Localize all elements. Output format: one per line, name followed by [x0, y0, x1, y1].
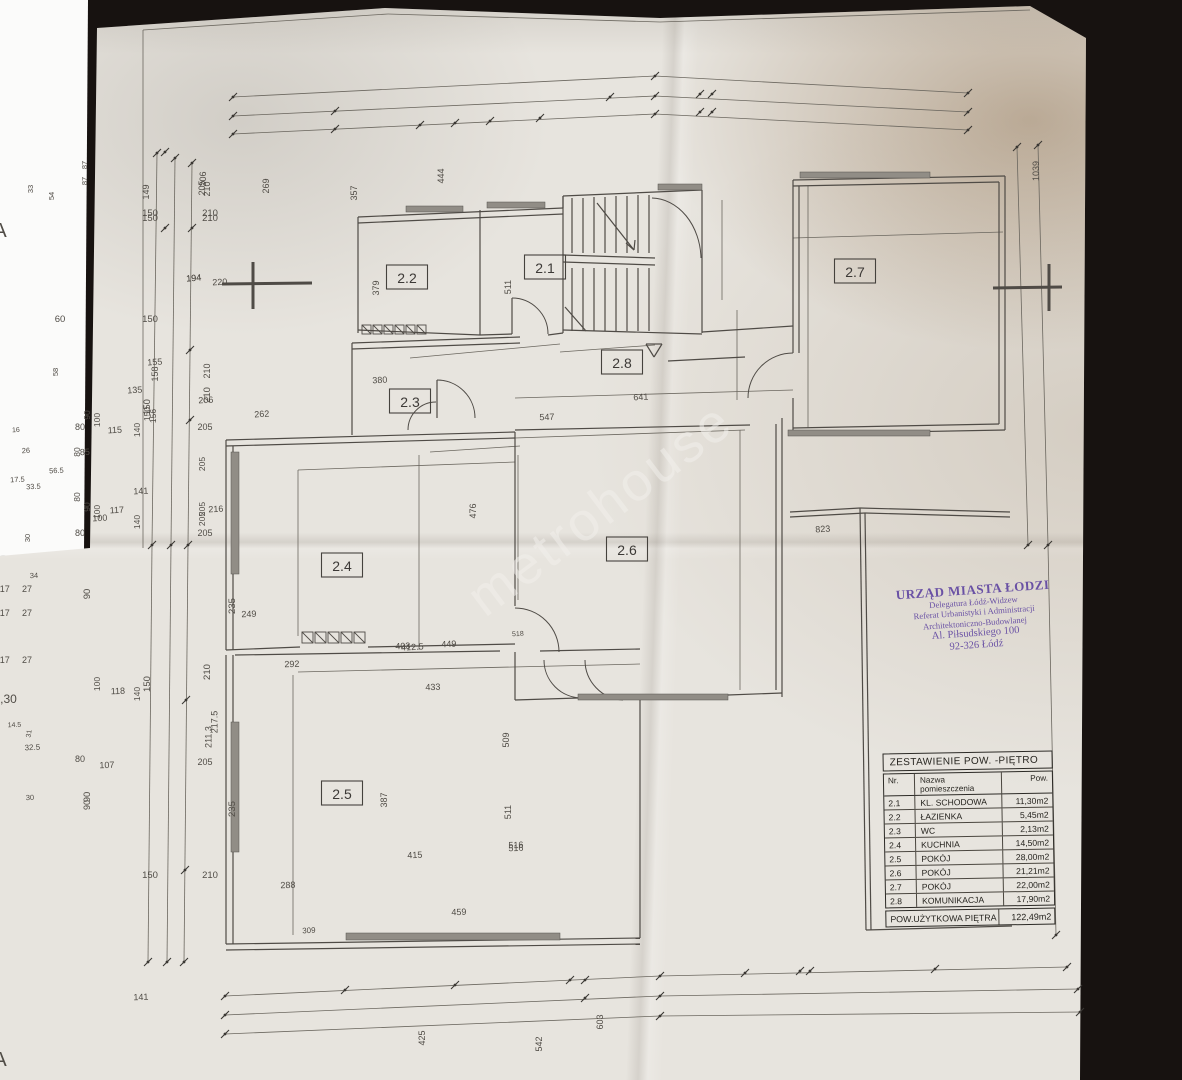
- dimension-label: 542: [534, 1036, 544, 1051]
- dimension-label: 459: [451, 907, 466, 918]
- area-table: ZESTAWIENIE POW. -PIĘTRO Nr. Nazwa pomie…: [882, 751, 1055, 928]
- header-area: Pow.: [1002, 772, 1052, 794]
- dimension-label: 205: [197, 502, 207, 516]
- dimension-line: [388, 14, 660, 22]
- dimension-label: 90: [82, 410, 92, 420]
- room-label: 2.1: [535, 260, 555, 276]
- dimension-label: 27: [22, 584, 32, 594]
- dimension-line: [660, 10, 1030, 22]
- dimension-label: + 4,30: [0, 692, 17, 706]
- room-label: 2.7: [845, 264, 865, 280]
- table-cell: 2.1: [884, 796, 915, 810]
- wall-line: [480, 334, 512, 335]
- window-symbol: [231, 452, 239, 574]
- dimension-label: 1039: [1031, 161, 1041, 181]
- dimension-tick-dot: [799, 970, 802, 973]
- dimension-tick-dot: [569, 979, 572, 982]
- dimension-label: 58: [51, 368, 60, 376]
- dimension-tick-dot: [659, 1015, 662, 1018]
- dimension-label: 135: [127, 384, 143, 395]
- dimension-label: 60: [55, 314, 66, 325]
- dimension-label: 87: [80, 161, 89, 169]
- wall-line: [548, 333, 563, 335]
- table-cell: 2.4: [885, 838, 916, 852]
- dimension-tick-dot: [185, 699, 188, 702]
- dimension-tick-dot: [934, 968, 937, 971]
- window-symbol: [578, 694, 728, 700]
- table-cell: ŁAZIENKA: [915, 808, 1002, 823]
- dimension-tick-dot: [584, 979, 587, 982]
- dimension-tick-dot: [711, 111, 714, 114]
- wall-line: [226, 647, 300, 650]
- dimension-label: 80: [72, 492, 82, 502]
- room-label: 2.5: [332, 786, 352, 802]
- dimension-tick-dot: [187, 544, 190, 547]
- dimension-tick-dot: [809, 970, 812, 973]
- dimension-tick-dot: [711, 93, 714, 96]
- wall-line: [728, 693, 782, 695]
- dimension-label: 54: [47, 192, 56, 200]
- dimension-label: 403: [395, 641, 411, 652]
- wall-line: [646, 344, 654, 357]
- dimension-line: [1017, 147, 1028, 545]
- dimension-label: 309: [302, 926, 316, 936]
- dimension-tick-dot: [151, 544, 154, 547]
- wall-line: [634, 240, 635, 250]
- dimension-label: 31: [25, 729, 33, 738]
- wall-line: [226, 944, 640, 950]
- dimension-tick-dot: [1055, 934, 1058, 937]
- dimension-label: 211.3: [203, 726, 213, 748]
- dimension-tick-dot: [232, 133, 235, 136]
- table-cell: 17,90m2: [1004, 892, 1054, 906]
- dimension-label: 118: [111, 686, 126, 696]
- dimension-label: 516: [508, 843, 523, 854]
- dimension-line: [1038, 145, 1048, 545]
- hatch-diagonal: [341, 632, 352, 643]
- dimension-label: 149: [141, 184, 151, 199]
- dimension-tick-dot: [454, 122, 457, 125]
- dimension-label: 235: [227, 801, 238, 817]
- dimension-label: 194: [186, 272, 202, 283]
- dimension-label: 603: [595, 1014, 605, 1029]
- window-symbol: [658, 184, 702, 190]
- dimension-label: 155: [147, 356, 163, 367]
- dimension-tick-dot: [699, 93, 702, 96]
- dimension-line: [171, 158, 175, 545]
- wall-line: [563, 262, 655, 265]
- wall-line: [793, 182, 999, 186]
- dimension-line: [655, 114, 968, 130]
- wall-line: [515, 698, 578, 700]
- dimension-label: 87: [80, 177, 89, 185]
- dimension-tick-dot: [654, 95, 657, 98]
- wall-line: [668, 357, 745, 361]
- dimension-label: 32.5: [24, 743, 41, 753]
- dimension-line: [188, 163, 192, 545]
- area-table-grid: Nr. Nazwa pomieszczenia Pow. 2.1KL. SCHO…: [883, 771, 1055, 909]
- room-label: 2.6: [617, 542, 637, 558]
- dimension-label: 100: [92, 513, 108, 524]
- dimension-label: 269: [261, 178, 271, 193]
- dimension-label: A: [0, 220, 7, 242]
- dimension-tick-dot: [189, 349, 192, 352]
- table-cell: 2.5: [885, 852, 916, 866]
- dimension-label: 9x17: [0, 655, 10, 665]
- dimension-tick-dot: [699, 111, 702, 114]
- dimension-label: 17.5: [10, 475, 25, 485]
- dimension-tick-dot: [164, 151, 167, 154]
- dimension-label: 158: [150, 366, 160, 381]
- wall-line: [235, 651, 500, 655]
- hatch-diagonal: [328, 632, 339, 643]
- dimension-label: 141: [133, 992, 148, 1003]
- footer-value: 122,49m2: [999, 909, 1054, 925]
- dimension-line: [148, 545, 152, 962]
- table-cell: POKÓJ: [917, 878, 1004, 893]
- dimension-label: 210: [202, 181, 212, 196]
- dimension-label: 357: [349, 185, 359, 200]
- dimension-tick-dot: [659, 995, 662, 998]
- dimension-label: 33.5: [26, 482, 41, 492]
- dimension-line: [793, 232, 1003, 238]
- dimension-label: 80: [75, 422, 85, 432]
- dimension-tick-dot: [967, 92, 970, 95]
- dimension-label: 262: [254, 408, 270, 419]
- wall-line: [563, 190, 702, 196]
- area-table-footer: POW.UŻYTKOWA PIĘTRA 122,49m2: [885, 908, 1055, 928]
- table-cell: 2.2: [884, 810, 915, 824]
- dimension-label: 380: [372, 375, 388, 386]
- dimension-label: 141: [133, 486, 149, 497]
- table-cell: 14,50m2: [1003, 836, 1053, 850]
- table-cell: 11,30m2: [1002, 794, 1052, 808]
- wall-line: [222, 283, 312, 284]
- dimension-label: 27: [22, 608, 32, 618]
- dimension-label: 100: [92, 677, 102, 691]
- dimension-line: [560, 345, 655, 352]
- window-symbol: [346, 933, 560, 940]
- dimension-label: 34: [30, 571, 39, 580]
- dimension-line: [655, 76, 968, 93]
- table-cell: 2.7: [886, 880, 917, 894]
- dimension-tick-dot: [344, 989, 347, 992]
- dimension-label: 823: [815, 523, 831, 534]
- footer-label: POW.UŻYTKOWA PIĘTRA: [886, 909, 999, 926]
- dimension-tick-dot: [744, 972, 747, 975]
- window-symbol: [788, 430, 930, 436]
- dimension-label: 140: [132, 423, 142, 437]
- dimension-tick-dot: [1079, 1011, 1082, 1014]
- dimension-tick-dot: [170, 544, 173, 547]
- dimension-label: 26: [21, 446, 30, 455]
- wall-line: [993, 287, 1062, 288]
- dimension-tick-dot: [166, 961, 169, 964]
- dimension-tick-dot: [334, 110, 337, 113]
- dimension-label: 210: [202, 208, 218, 219]
- hatch-diagonal: [384, 325, 393, 334]
- wall-line: [654, 344, 662, 357]
- dimension-tick-dot: [489, 120, 492, 123]
- dimension-label: 449: [441, 639, 457, 650]
- dimension-label: 80: [75, 528, 85, 538]
- dimension-label: 205: [197, 457, 207, 471]
- dimension-label: 107: [99, 760, 114, 771]
- dimension-tick-dot: [454, 984, 457, 987]
- dimension-label: 425: [417, 1030, 427, 1045]
- dimension-label: 90: [82, 800, 92, 810]
- hatch-diagonal: [302, 632, 313, 643]
- wall-line: [790, 508, 860, 512]
- wall-line: [860, 508, 1010, 512]
- dimension-label: 518: [512, 631, 524, 639]
- dimension-label: 27: [22, 655, 32, 665]
- dimension-label: 210: [202, 387, 213, 403]
- dimension-label: 56.5: [49, 466, 64, 476]
- door-arc: [512, 298, 548, 334]
- dimension-label: 150: [142, 870, 158, 881]
- dimension-label: 205: [197, 528, 212, 538]
- dimension-tick-dot: [419, 124, 422, 127]
- dimension-label: 387: [379, 792, 389, 807]
- dimension-tick-dot: [1047, 544, 1050, 547]
- table-cell: 22,00m2: [1004, 878, 1054, 892]
- table-cell: 2.3: [885, 824, 916, 838]
- dimension-line: [430, 446, 520, 452]
- header-nr: Nr.: [884, 774, 915, 796]
- table-cell: 2,13m2: [1003, 822, 1053, 836]
- table-cell: KOMUNIKACJA: [917, 892, 1004, 907]
- dimension-tick-dot: [659, 975, 662, 978]
- hatch-diagonal: [354, 632, 365, 643]
- dimension-label: 509: [501, 732, 511, 747]
- dimension-tick-dot: [164, 227, 167, 230]
- dimension-line: [225, 976, 660, 996]
- table-cell: POKÓJ: [916, 864, 1003, 879]
- wall-line: [540, 649, 640, 651]
- window-symbol: [800, 172, 930, 178]
- dimension-tick-dot: [191, 162, 194, 165]
- dimension-label: 476: [468, 503, 478, 518]
- dimension-label: 379: [371, 280, 381, 295]
- dimension-tick-dot: [654, 75, 657, 78]
- room-label: 2.3: [400, 394, 420, 410]
- hatch-diagonal: [373, 325, 382, 334]
- table-cell: 2.6: [885, 866, 916, 880]
- dimension-tick-dot: [609, 96, 612, 99]
- dimension-tick-dot: [156, 152, 159, 155]
- table-cell: POKÓJ: [916, 850, 1003, 865]
- dimension-tick-dot: [1077, 988, 1080, 991]
- room-label: 2.4: [332, 558, 352, 574]
- dimension-label: 249: [241, 609, 256, 620]
- photo-of-floor-plan: 153382324911814.551651619419415511556.51…: [0, 0, 1182, 1080]
- wall-line: [702, 326, 793, 332]
- dimension-line: [184, 545, 188, 962]
- dimension-line: [233, 96, 655, 116]
- dimension-tick-dot: [539, 117, 542, 120]
- header-name: Nazwa pomieszczenia: [915, 772, 1002, 795]
- dimension-line: [515, 390, 793, 398]
- dimension-label: 30: [26, 793, 35, 802]
- dimension-tick-dot: [174, 157, 177, 160]
- dimension-label: 205: [197, 757, 212, 767]
- dimension-tick-dot: [224, 1033, 227, 1036]
- window-symbol: [231, 722, 239, 852]
- dimension-label: 90: [82, 502, 92, 512]
- dimension-tick-dot: [184, 869, 187, 872]
- wall-line: [352, 337, 520, 343]
- dimension-tick-dot: [1016, 146, 1019, 149]
- dimension-label: 220: [212, 277, 228, 288]
- dimension-label: 140: [132, 515, 142, 529]
- dimension-label: 235: [227, 598, 238, 614]
- dimension-tick-dot: [224, 995, 227, 998]
- dimension-label: 14.5: [8, 722, 22, 729]
- dimension-tick-dot: [967, 129, 970, 132]
- wall-line: [865, 513, 1010, 517]
- hatch-diagonal: [395, 325, 404, 334]
- wall-line: [563, 330, 702, 334]
- dimension-tick-dot: [232, 96, 235, 99]
- wall-line: [790, 513, 865, 517]
- dimension-label: 85: [80, 447, 91, 458]
- window-symbol: [406, 206, 463, 212]
- dimension-label: 30: [23, 534, 32, 542]
- dimension-label: 9x17: [0, 584, 10, 594]
- office-stamp: URZĄD MIASTA ŁODZIDelegatura Łódź-Widzew…: [870, 575, 1079, 660]
- wall-line: [865, 513, 871, 930]
- dimension-tick-dot: [654, 113, 657, 116]
- room-label: 2.8: [612, 355, 632, 371]
- dimension-tick-dot: [1037, 144, 1040, 147]
- dimension-label: 210: [202, 664, 213, 680]
- dimension-label: 292: [284, 659, 299, 670]
- dimension-label: 150: [142, 314, 158, 325]
- area-table-header: Nr. Nazwa pomieszczenia Pow.: [884, 772, 1052, 797]
- dimension-line: [298, 462, 515, 470]
- dimension-tick-dot: [232, 115, 235, 118]
- table-cell: 28,00m2: [1003, 850, 1053, 864]
- dimension-line: [515, 430, 745, 438]
- door-arc: [652, 198, 701, 258]
- dimension-label: 216: [208, 504, 224, 515]
- window-symbol: [487, 202, 545, 208]
- dimension-label: 444: [436, 168, 446, 183]
- wall-line: [352, 343, 520, 349]
- room-label: 2.2: [397, 270, 417, 286]
- dimension-label: 511: [503, 805, 513, 819]
- dimension-label: 641: [633, 392, 649, 403]
- dimension-label: 415: [407, 850, 423, 861]
- dimension-line: [660, 1012, 1080, 1016]
- dimension-line: [225, 996, 660, 1015]
- dimension-tick-dot: [1066, 966, 1069, 969]
- dimension-tick-dot: [189, 419, 192, 422]
- table-cell: KL. SCHODOWA: [915, 794, 1002, 809]
- dimension-tick-dot: [224, 1014, 227, 1017]
- dimension-line: [167, 545, 171, 962]
- dimension-tick-dot: [191, 227, 194, 230]
- dimension-label: 547: [539, 412, 554, 423]
- dimension-label: 100: [92, 413, 102, 427]
- dimension-label: 511: [503, 280, 513, 294]
- table-row: 2.8KOMUNIKACJA17,90m2: [886, 892, 1054, 908]
- dimension-line: [660, 989, 1078, 996]
- table-cell: WC: [916, 822, 1003, 837]
- door-arc: [437, 380, 475, 418]
- dimension-label: 115: [107, 425, 122, 436]
- area-table-title: ZESTAWIENIE POW. -PIĘTRO: [882, 751, 1052, 772]
- dimension-label: 16: [12, 427, 20, 434]
- dimension-tick-dot: [584, 997, 587, 1000]
- dimension-label: 33: [26, 185, 35, 193]
- table-cell: 5,45m2: [1002, 808, 1052, 822]
- table-cell: KUCHNIA: [916, 836, 1003, 851]
- dimension-tick-dot: [334, 128, 337, 131]
- dimension-label: 9x17: [0, 608, 10, 618]
- wall-line: [860, 508, 866, 930]
- wall-line: [563, 255, 655, 258]
- dimension-label: 90: [82, 589, 93, 600]
- dimension-label: 80: [75, 754, 85, 764]
- table-cell: 2.8: [886, 894, 917, 908]
- dimension-label: A: [0, 1049, 7, 1071]
- dimension-tick-dot: [183, 961, 186, 964]
- hatch-diagonal: [315, 632, 326, 643]
- wall-line: [515, 425, 750, 430]
- wall-line: [793, 424, 999, 428]
- dimension-label: 205: [197, 422, 212, 432]
- dimension-label: 210: [202, 363, 212, 378]
- dimension-line: [660, 967, 1067, 976]
- dimension-label: 156: [148, 409, 158, 423]
- hatch-diagonal: [362, 325, 371, 334]
- dimension-label: 117: [109, 505, 124, 516]
- dimension-label: 288: [280, 880, 295, 891]
- dimension-label: 150: [142, 208, 158, 219]
- dimension-tick-dot: [1027, 544, 1030, 547]
- dimension-label: 140: [132, 687, 142, 701]
- dimension-line: [143, 14, 388, 30]
- dimension-label: 150: [142, 676, 153, 692]
- dimension-line: [298, 664, 640, 672]
- dimension-tick-dot: [967, 111, 970, 114]
- dimension-label: 433: [425, 682, 440, 693]
- dimension-line: [233, 114, 655, 134]
- dimension-line: [233, 76, 655, 97]
- dimension-tick-dot: [147, 961, 150, 964]
- table-cell: 21,21m2: [1003, 864, 1053, 878]
- dimension-label: 210: [202, 870, 218, 881]
